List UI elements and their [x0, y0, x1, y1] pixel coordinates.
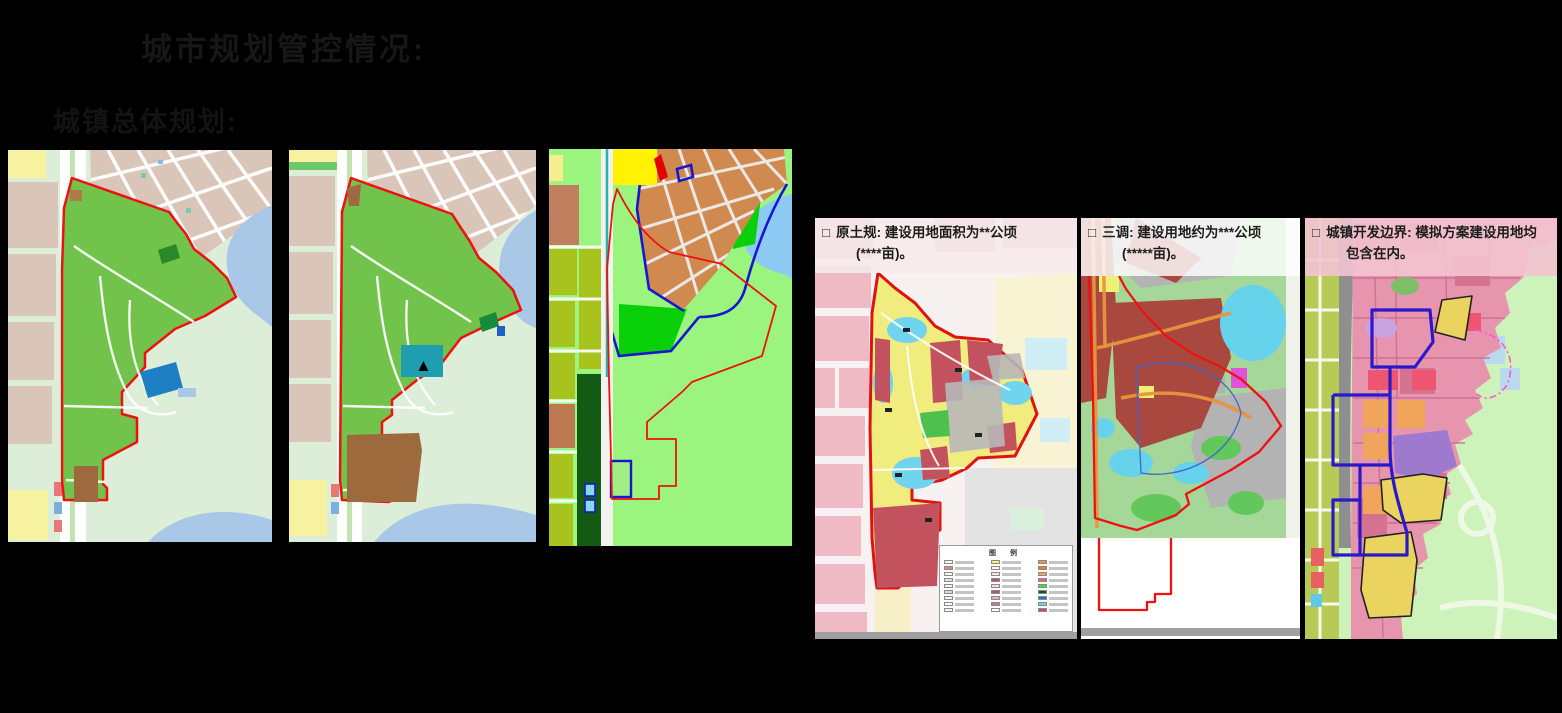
- legend-swatch: [1038, 602, 1047, 606]
- map-legend: 图 例: [939, 545, 1073, 632]
- annotation-text: 建设用地面积为**公顷: [885, 225, 1017, 240]
- legend-swatch: [944, 578, 953, 582]
- legend-swatch: [991, 602, 1000, 606]
- legend-label-placeholder: [955, 573, 974, 576]
- section-subtitle: 城镇总体规划:: [53, 100, 238, 139]
- legend-swatch: [991, 572, 1000, 576]
- legend-label-placeholder: [1049, 573, 1068, 576]
- page-title: 城市规划管控情况:: [141, 24, 426, 69]
- legend-label-placeholder: [1049, 603, 1068, 606]
- map-regulatory-plan: [549, 149, 792, 546]
- annotation-sandiao: □三调: 建设用地约为***公顷 (*****亩)。: [1088, 223, 1297, 265]
- legend-swatch: [1038, 596, 1047, 600]
- map-master-plan-b: ▲: [289, 150, 536, 542]
- map-regulatory-plan-image: [549, 149, 792, 546]
- legend-swatch: [944, 602, 953, 606]
- legend-label-placeholder: [1002, 603, 1021, 606]
- annotation-text-line2: (****亩)。: [822, 244, 1074, 265]
- legend-label-placeholder: [1049, 609, 1068, 612]
- legend-label-placeholder: [1002, 567, 1021, 570]
- map-sandiao-image: [1081, 218, 1300, 639]
- map-kaifabianjie-image: [1305, 218, 1557, 639]
- legend-swatch: [991, 590, 1000, 594]
- legend-swatch: [1038, 584, 1047, 588]
- legend-label-placeholder: [955, 585, 974, 588]
- legend-swatch: [1038, 608, 1047, 612]
- legend-swatch: [991, 596, 1000, 600]
- legend-label-placeholder: [1002, 597, 1021, 600]
- annotation-kaifabianjie: □城镇开发边界: 模拟方案建设用地均 包含在内。: [1312, 223, 1554, 265]
- legend-title: 图 例: [940, 548, 1072, 558]
- legend-swatch: [944, 560, 953, 564]
- panel-sandiao: □三调: 建设用地约为***公顷 (*****亩)。: [1081, 218, 1300, 639]
- map-master-plan-a: [8, 150, 272, 542]
- legend-label-placeholder: [1049, 567, 1068, 570]
- legend-swatch: [991, 560, 1000, 564]
- legend-swatch: [944, 596, 953, 600]
- legend-swatch: [944, 566, 953, 570]
- annotation-text: 模拟方案建设用地均: [1415, 225, 1537, 240]
- legend-swatch: [1038, 590, 1047, 594]
- legend-swatch: [1038, 572, 1047, 576]
- legend-label-placeholder: [1049, 585, 1068, 588]
- legend-swatches: [940, 558, 1072, 612]
- legend-swatch: [991, 578, 1000, 582]
- legend-swatch: [944, 584, 953, 588]
- legend-label-placeholder: [955, 567, 974, 570]
- legend-label-placeholder: [1049, 579, 1068, 582]
- legend-label-placeholder: [1049, 561, 1068, 564]
- legend-label-placeholder: [955, 561, 974, 564]
- legend-label-placeholder: [955, 597, 974, 600]
- annotation-text: 建设用地约为***公顷: [1137, 225, 1261, 240]
- legend-label-placeholder: [1002, 609, 1021, 612]
- annotation-text-line2: 包含在内。: [1312, 244, 1554, 265]
- legend-swatch: [944, 590, 953, 594]
- slide-canvas: 城市规划管控情况: 城镇总体规划:: [0, 0, 1562, 713]
- annotation-yuantugui: □原土规: 建设用地面积为**公顷 (****亩)。: [822, 223, 1074, 265]
- legend-label-placeholder: [1049, 597, 1068, 600]
- tower-marker-icon: ▲: [415, 356, 432, 375]
- legend-label-placeholder: [955, 609, 974, 612]
- annotation-label: 原土规:: [836, 225, 881, 240]
- legend-swatch: [1038, 578, 1047, 582]
- legend-swatch: [991, 566, 1000, 570]
- legend-swatch: [1038, 566, 1047, 570]
- legend-label-placeholder: [955, 591, 974, 594]
- map-master-plan-a-image: [8, 150, 272, 542]
- square-bullet-icon: □: [1312, 225, 1320, 240]
- annotation-label: 城镇开发边界:: [1326, 225, 1412, 240]
- annotation-label: 三调:: [1102, 225, 1134, 240]
- legend-label-placeholder: [1002, 585, 1021, 588]
- panel-yuantugui: □原土规: 建设用地面积为**公顷 (****亩)。 图 例: [815, 218, 1077, 639]
- legend-label-placeholder: [1049, 591, 1068, 594]
- panel-kaifabianjie: □城镇开发边界: 模拟方案建设用地均 包含在内。: [1305, 218, 1557, 639]
- legend-swatch: [944, 608, 953, 612]
- legend-label-placeholder: [955, 579, 974, 582]
- map-master-plan-b-image: ▲: [289, 150, 536, 542]
- legend-label-placeholder: [1002, 579, 1021, 582]
- legend-swatch: [944, 572, 953, 576]
- legend-label-placeholder: [1002, 591, 1021, 594]
- square-bullet-icon: □: [1088, 225, 1096, 240]
- legend-swatch: [1038, 560, 1047, 564]
- legend-swatch: [991, 584, 1000, 588]
- legend-swatch: [991, 608, 1000, 612]
- legend-label-placeholder: [955, 603, 974, 606]
- annotation-text-line2: (*****亩)。: [1088, 244, 1297, 265]
- legend-label-placeholder: [1002, 561, 1021, 564]
- legend-label-placeholder: [1002, 573, 1021, 576]
- square-bullet-icon: □: [822, 225, 830, 240]
